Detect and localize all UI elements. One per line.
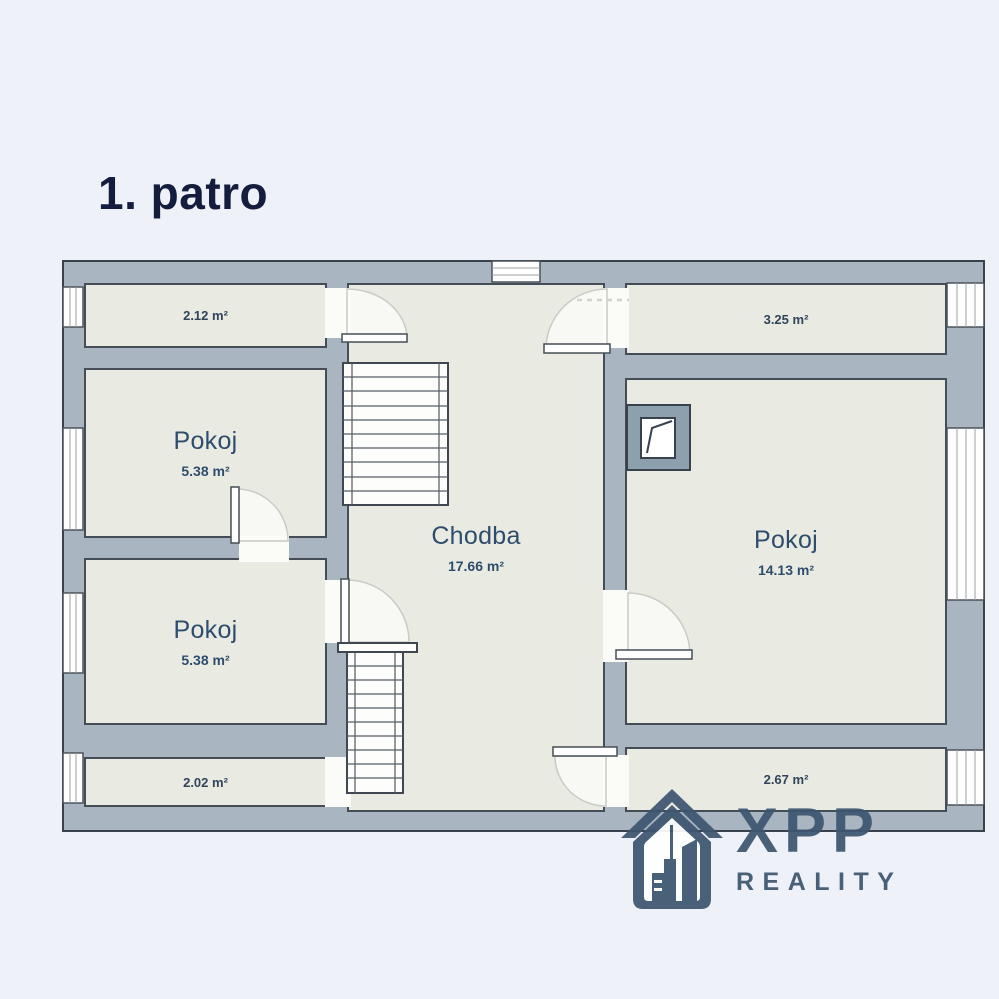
xpp-reality-logo: XPP REALITY: [620, 786, 902, 912]
door-arc: [347, 580, 409, 642]
staircase-lower: [338, 643, 417, 793]
door-swing-arcs: [237, 289, 690, 806]
door-arc: [237, 489, 288, 541]
door-arc: [546, 289, 607, 349]
floor-plan-page: 1. patro 2.12 m² Pokoj 5.38 m² Pokoj 5.3…: [0, 0, 999, 999]
door-arc: [628, 593, 690, 655]
logo-subtitle: REALITY: [736, 868, 902, 897]
door-leaf: [553, 747, 617, 756]
window-top-wall: [492, 261, 540, 282]
logo-brand-name: XPP: [736, 802, 902, 862]
door-leaf: [544, 344, 610, 353]
chimney-icon: [627, 405, 690, 470]
windows-left-wall: [63, 287, 83, 803]
door-leaves: [231, 334, 692, 756]
door-arc: [555, 756, 606, 806]
door-leaf: [616, 650, 692, 659]
door-leaf: [341, 579, 349, 643]
window-icon: [63, 287, 83, 327]
staircase-upper: [343, 363, 448, 505]
house-logo-icon: [620, 786, 724, 912]
window-icon: [63, 593, 83, 673]
windows-right-wall: [947, 283, 984, 805]
window-icon: [63, 753, 83, 803]
door-arc: [347, 289, 407, 339]
door-leaf: [231, 487, 239, 543]
window-icon: [63, 428, 83, 530]
door-leaf: [342, 334, 407, 342]
logo-text: XPP REALITY: [736, 802, 902, 897]
window-icon: [492, 261, 540, 282]
